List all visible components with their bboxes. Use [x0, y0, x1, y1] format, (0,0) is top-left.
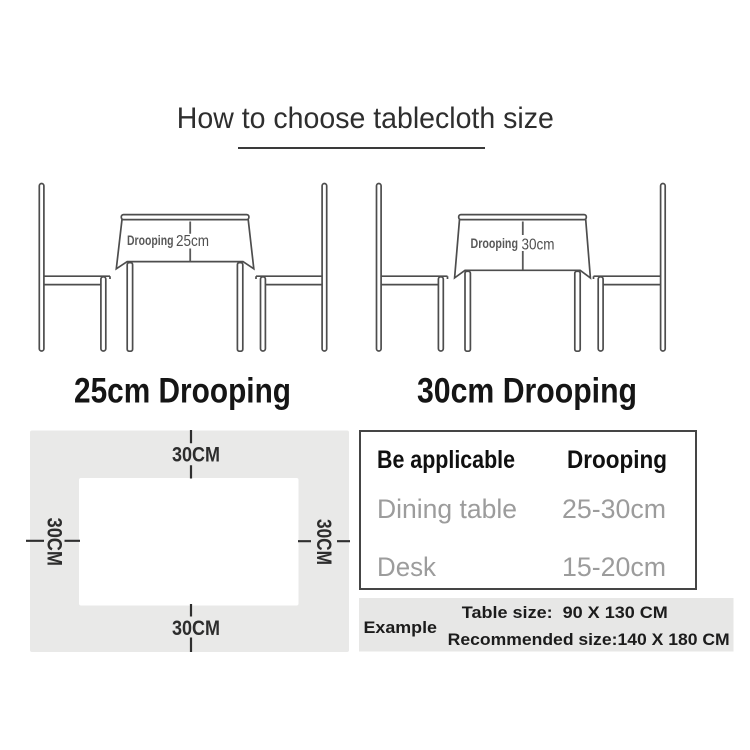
- svg-text:Table size: 90 X 130 CM: Table size: 90 X 130 CM: [462, 603, 668, 622]
- svg-text:How to choose tablecloth size: How to choose tablecloth size: [177, 102, 554, 135]
- svg-text:15-20cm: 15-20cm: [562, 552, 666, 582]
- svg-text:Recommended size:140 X 180 CM: Recommended size:140 X 180 CM: [448, 630, 730, 649]
- svg-text:30CM: 30CM: [43, 518, 66, 566]
- svg-text:30CM: 30CM: [172, 617, 220, 640]
- svg-text:Desk: Desk: [377, 552, 436, 582]
- svg-text:30cm Drooping: 30cm Drooping: [417, 372, 637, 411]
- svg-text:25-30cm: 25-30cm: [562, 494, 666, 524]
- svg-text:Dining table: Dining table: [377, 494, 517, 524]
- svg-text:Drooping: Drooping: [471, 236, 519, 251]
- svg-text:30cm: 30cm: [522, 237, 555, 254]
- svg-text:Example: Example: [364, 618, 438, 637]
- svg-text:Drooping: Drooping: [127, 233, 174, 248]
- svg-text:Be applicable: Be applicable: [377, 446, 515, 474]
- svg-text:25cm Drooping: 25cm Drooping: [74, 372, 291, 411]
- svg-text:30CM: 30CM: [172, 444, 220, 467]
- svg-text:25cm: 25cm: [176, 233, 209, 250]
- svg-text:30CM: 30CM: [312, 519, 335, 565]
- svg-text:Drooping: Drooping: [567, 446, 667, 474]
